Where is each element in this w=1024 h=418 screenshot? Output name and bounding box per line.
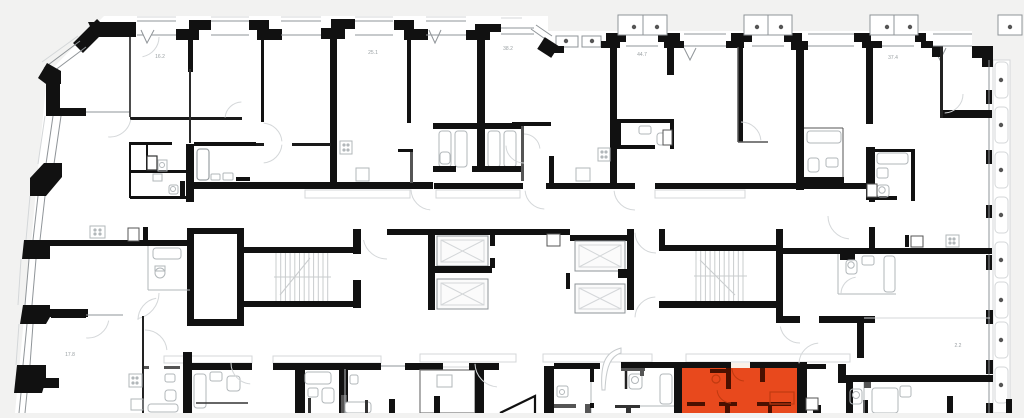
svg-text:44.7: 44.7 [637,52,647,58]
svg-text:17.8: 17.8 [65,352,75,358]
svg-text:25.1: 25.1 [368,50,378,56]
svg-text:38.2: 38.2 [503,46,513,52]
svg-text:2.2: 2.2 [955,343,962,349]
svg-text:37.4: 37.4 [888,55,898,61]
svg-text:16.2: 16.2 [155,54,165,60]
